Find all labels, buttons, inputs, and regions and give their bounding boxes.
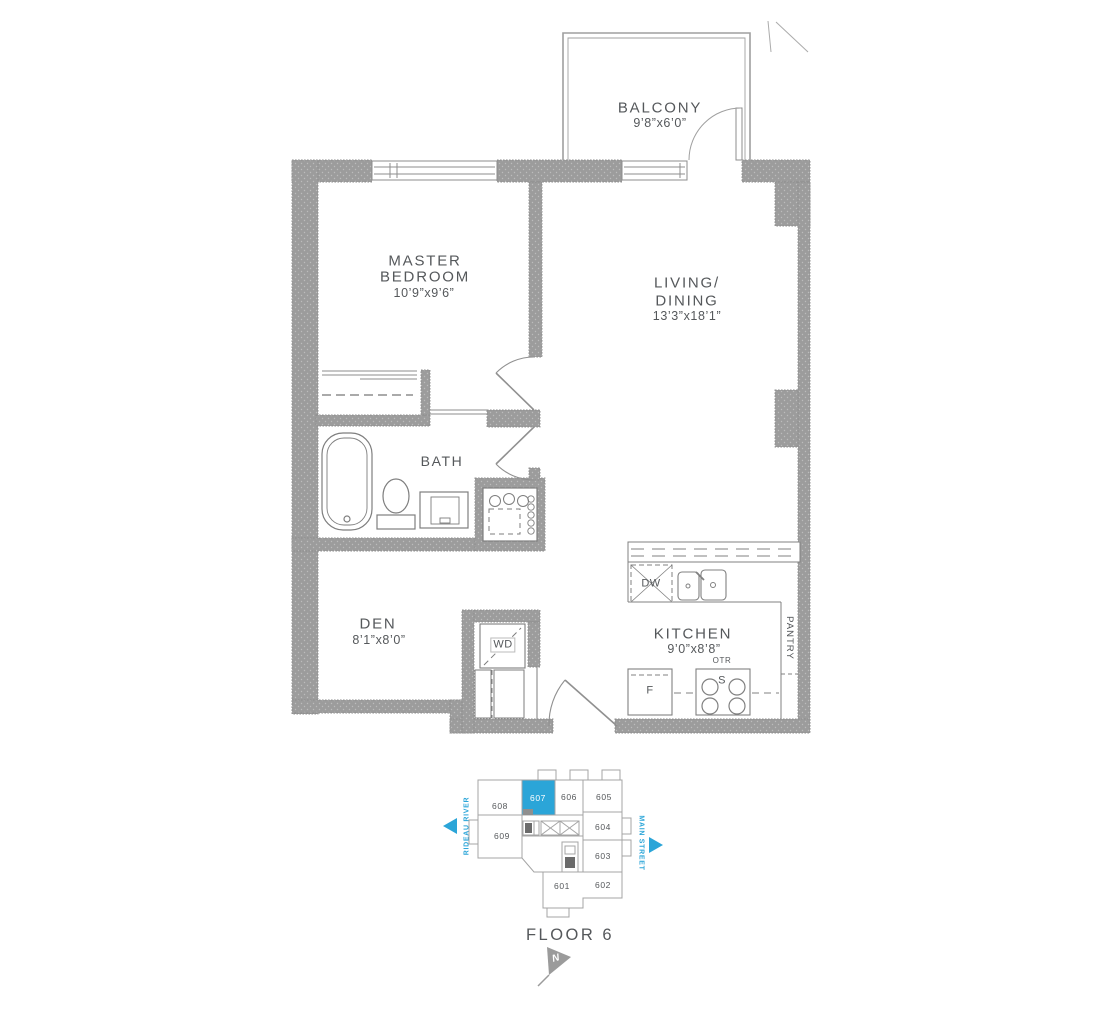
master-bedroom-dims: 10’9”x9’6”	[394, 287, 455, 300]
wall-top-mid	[497, 160, 622, 182]
kitchen-dims: 9’0”x8’8”	[667, 643, 720, 656]
adjacent-balcony-divider	[776, 22, 808, 52]
master-window	[372, 161, 497, 180]
wall-den-bottom	[292, 700, 463, 713]
living-dining-label-line1: LIVING/	[654, 276, 720, 291]
bath-label: BATH	[421, 454, 464, 468]
closet-door-right	[494, 670, 524, 718]
keyplan-unit-604: 604	[595, 823, 611, 832]
entry-door-leaf	[565, 680, 617, 726]
stove-label: S	[718, 676, 726, 687]
upper-cabinets	[628, 542, 800, 562]
toilet	[383, 479, 409, 513]
floorplan-page: BALCONY 9’8”x6’0” MASTER BEDROOM 10’9”x9…	[0, 0, 1100, 1024]
kitchen-label: KITCHEN	[654, 627, 732, 642]
master-bedroom-label-line1: MASTER	[388, 254, 461, 269]
dishwasher-label: DW	[641, 579, 660, 590]
rideau-river-label: RIDEAU RIVER	[464, 797, 471, 856]
living-window	[622, 161, 687, 180]
fridge-label: F	[646, 686, 653, 697]
walls	[292, 160, 810, 733]
balcony-label: BALCONY	[618, 101, 702, 116]
keyplan-unit-606: 606	[561, 793, 577, 802]
keyplan-unit-607: 607	[530, 794, 546, 803]
wall-left	[292, 160, 318, 714]
vanity-sink	[431, 497, 459, 524]
plan-artwork	[0, 0, 1100, 1024]
otr-label: OTR	[713, 657, 732, 665]
washer-dryer-label: WD	[490, 638, 515, 653]
keyplan-unit-603: 603	[595, 852, 611, 861]
floor-label: FLOOR 6	[526, 927, 614, 944]
kitchen-sink	[678, 572, 699, 600]
pantry-label: PANTRY	[784, 616, 794, 660]
bath-door-leaf	[496, 427, 534, 464]
den-label: DEN	[359, 617, 396, 632]
keyplan-unit-605: 605	[596, 793, 612, 802]
wall-closet-bottom	[316, 415, 430, 426]
rideau-river-arrow	[443, 818, 457, 834]
wall-top-right	[742, 160, 810, 182]
adjacent-balcony-line	[768, 21, 771, 52]
wall-bedroom-living	[529, 182, 542, 357]
den-dims: 8’1”x8’0”	[352, 634, 405, 647]
wall-stub-shower	[529, 468, 540, 480]
balcony-dims: 9’8”x6’0”	[633, 117, 686, 130]
wall-door-stub	[487, 410, 540, 427]
keyplan-unit-609: 609	[494, 832, 510, 841]
wall-wd-left	[462, 610, 474, 733]
keyplan-unit-601: 601	[554, 882, 570, 891]
wall-right	[798, 182, 810, 730]
closet-door-left	[475, 670, 491, 718]
wall-closet-side	[421, 370, 430, 415]
main-street-arrow	[649, 837, 663, 853]
master-closet	[322, 371, 488, 414]
keyplan-unit-602: 602	[595, 881, 611, 890]
balcony-door-leaf	[736, 108, 742, 160]
living-dining-dims: 13’3”x18’1”	[653, 310, 721, 323]
living-dining-label-line2: DINING	[655, 294, 718, 309]
wall-right-bump	[775, 390, 798, 447]
wall-wd-right	[528, 622, 540, 667]
master-bedroom-label-line2: BEDROOM	[380, 270, 470, 285]
main-street-label: MAIN STREET	[638, 815, 645, 870]
balcony-railing	[563, 21, 808, 160]
keyplan-unit-608: 608	[492, 802, 508, 811]
toilet-tank	[377, 515, 415, 529]
faucet	[696, 572, 704, 580]
wall-bottom-right	[615, 719, 810, 733]
bedroom-door-leaf	[496, 373, 534, 410]
bedroom-door-arc	[496, 357, 534, 373]
